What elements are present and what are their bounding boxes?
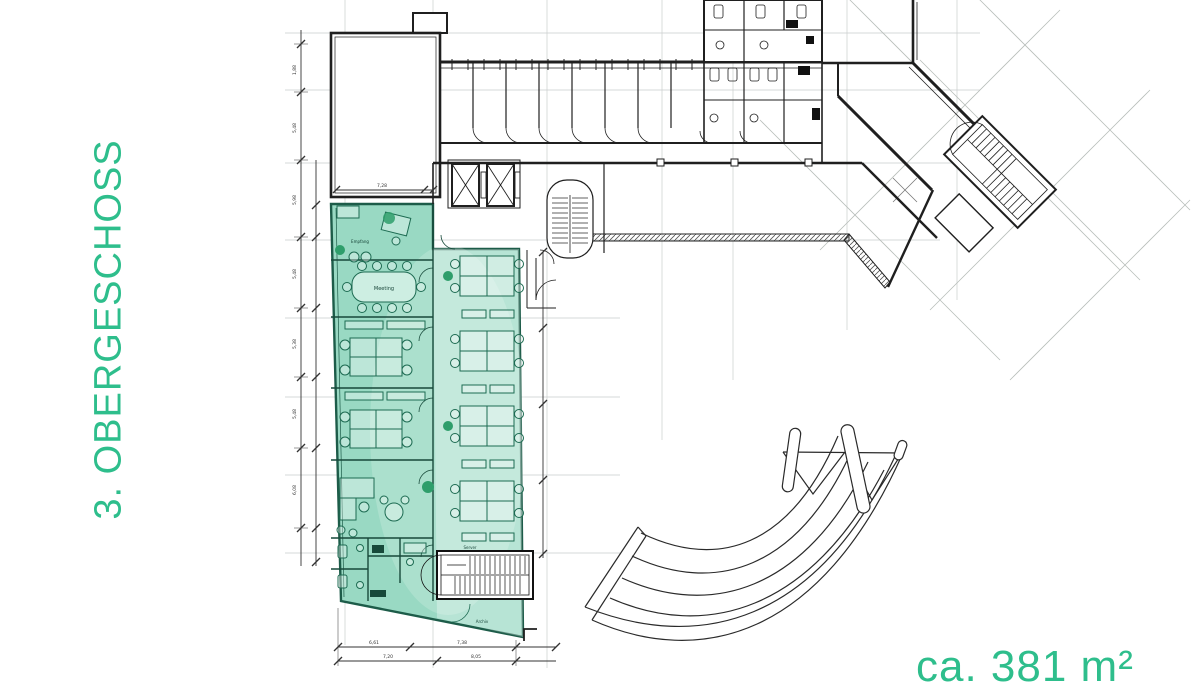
dim-bottom-u2: 7,38 xyxy=(457,640,467,646)
corner-bracket xyxy=(524,629,537,641)
area-size-label: ca. 381 m² xyxy=(916,642,1134,692)
dim-top: 7,28 xyxy=(377,183,387,189)
stair-annex xyxy=(935,194,993,252)
wc-block-wing xyxy=(700,62,822,163)
page: { "floor_label": { "text": "3. OBERGESCH… xyxy=(0,0,1200,675)
stairwell-bottom xyxy=(421,551,533,599)
meeting-room-label: Meeting xyxy=(374,286,394,292)
dim-left-4: 5,48 xyxy=(292,269,298,279)
dim-left-1: 1,88 xyxy=(292,65,298,75)
elevator-core xyxy=(433,160,520,208)
floor-plan-svg: Meeting Empfang Server Archiv 1,88 5,48 … xyxy=(0,0,1200,675)
archive-room-label: Archiv xyxy=(476,619,489,624)
diagonal-grid-layer xyxy=(760,0,1190,380)
dim-bottom-u1: 6,61 xyxy=(369,640,379,646)
dim-left-5: 5,38 xyxy=(292,339,298,349)
curved-canopy xyxy=(585,424,908,641)
dim-left-6: 5,48 xyxy=(292,409,298,419)
dim-bottom-l2: 8,05 xyxy=(471,654,481,660)
dim-left-2: 5,48 xyxy=(292,123,298,133)
server-room-label: Server xyxy=(463,545,476,550)
dim-bottom-l1: 7,20 xyxy=(383,654,393,660)
wc-block-top xyxy=(704,0,822,62)
dim-left-7: 6,08 xyxy=(292,485,298,495)
top-wing-room-dividers xyxy=(473,62,671,128)
dim-left-3: 5,98 xyxy=(292,195,298,205)
reception-label: Empfang xyxy=(351,239,369,244)
floor-title: 3. OBERGESCHOSS xyxy=(88,135,131,525)
